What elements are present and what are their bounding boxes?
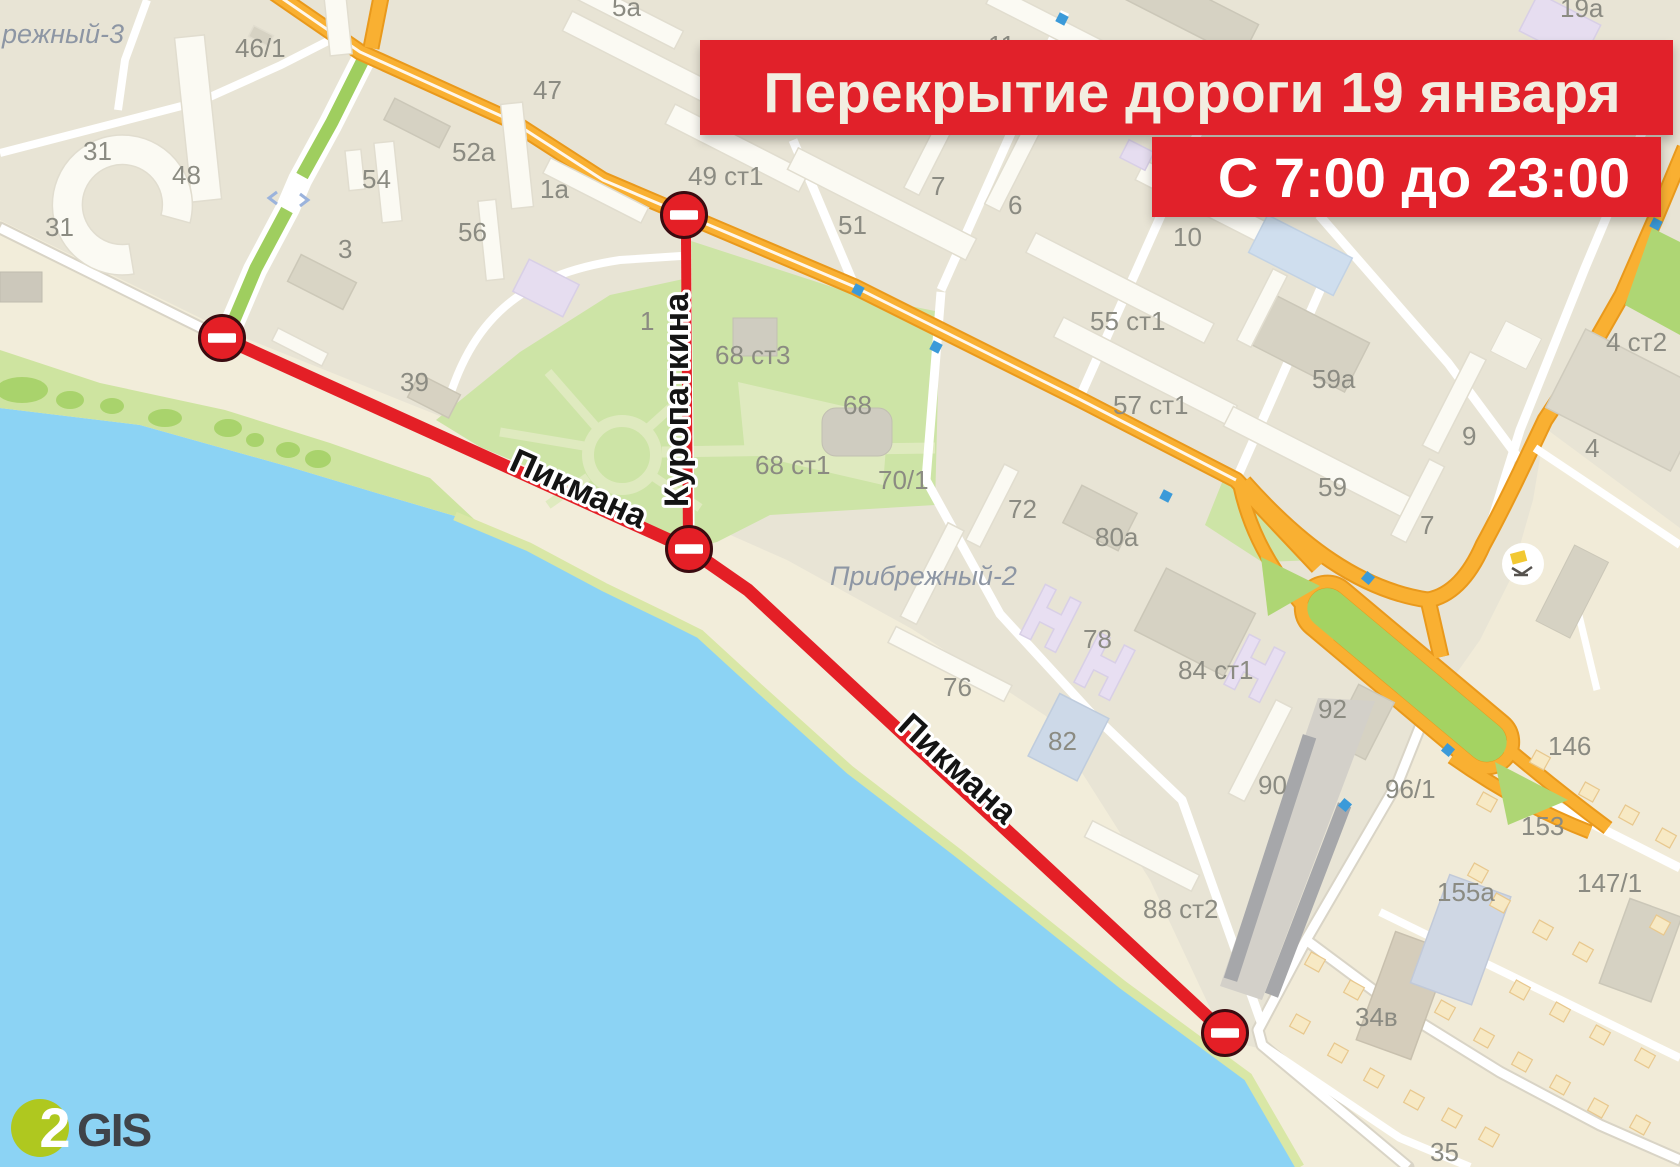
svg-text:54: 54	[362, 164, 391, 194]
svg-text:10: 10	[1173, 222, 1202, 252]
svg-text:49 ст1: 49 ст1	[688, 161, 764, 191]
svg-text:52а: 52а	[452, 137, 496, 167]
svg-text:68 ст1: 68 ст1	[755, 450, 831, 480]
svg-text:Прибрежный-2: Прибрежный-2	[830, 561, 1017, 591]
svg-text:35: 35	[1430, 1137, 1459, 1167]
svg-text:96/1: 96/1	[1385, 774, 1436, 804]
svg-text:51: 51	[838, 210, 867, 240]
svg-text:78: 78	[1083, 624, 1112, 654]
svg-text:Куропаткина: Куропаткина	[658, 292, 696, 507]
svg-text:88 ст2: 88 ст2	[1143, 894, 1219, 924]
svg-text:84 ст1: 84 ст1	[1178, 655, 1254, 685]
svg-text:7: 7	[1420, 510, 1434, 540]
svg-text:155а: 155а	[1437, 877, 1495, 907]
svg-text:С 7:00 до 23:00: С 7:00 до 23:00	[1218, 146, 1630, 209]
svg-text:31: 31	[45, 212, 74, 242]
svg-text:GIS: GIS	[77, 1104, 151, 1156]
svg-text:режный-3: режный-3	[1, 19, 124, 49]
svg-text:70/1: 70/1	[878, 465, 929, 495]
svg-text:1а: 1а	[540, 174, 569, 204]
svg-text:46/1: 46/1	[235, 33, 286, 63]
svg-text:147/1: 147/1	[1577, 868, 1642, 898]
svg-text:72: 72	[1008, 494, 1037, 524]
svg-text:6: 6	[1008, 190, 1022, 220]
svg-text:39: 39	[400, 367, 429, 397]
svg-text:153: 153	[1521, 811, 1564, 841]
svg-text:48: 48	[172, 160, 201, 190]
svg-text:34в: 34в	[1355, 1002, 1398, 1032]
svg-text:57 ст1: 57 ст1	[1113, 390, 1189, 420]
svg-text:59а: 59а	[1312, 364, 1356, 394]
svg-text:9: 9	[1462, 421, 1476, 451]
svg-text:1: 1	[640, 306, 654, 336]
svg-text:4: 4	[1585, 433, 1599, 463]
svg-text:4 ст2: 4 ст2	[1606, 327, 1667, 357]
svg-text:82: 82	[1048, 726, 1077, 756]
svg-text:7: 7	[931, 171, 945, 201]
svg-text:19а: 19а	[1560, 0, 1604, 23]
svg-text:3: 3	[338, 234, 352, 264]
svg-text:55 ст1: 55 ст1	[1090, 306, 1166, 336]
svg-text:90: 90	[1258, 770, 1287, 800]
svg-text:59: 59	[1318, 472, 1347, 502]
svg-text:31: 31	[83, 136, 112, 166]
svg-text:68 ст3: 68 ст3	[715, 340, 791, 370]
svg-text:47: 47	[533, 75, 562, 105]
svg-text:Перекрытие дороги 19 января: Перекрытие дороги 19 января	[763, 61, 1620, 125]
svg-text:68: 68	[843, 390, 872, 420]
svg-text:5а: 5а	[612, 0, 641, 22]
svg-text:146: 146	[1548, 731, 1591, 761]
svg-text:76: 76	[943, 672, 972, 702]
svg-text:92: 92	[1318, 694, 1347, 724]
svg-text:2: 2	[39, 1096, 70, 1159]
svg-text:80а: 80а	[1095, 522, 1139, 552]
svg-text:56: 56	[458, 217, 487, 247]
